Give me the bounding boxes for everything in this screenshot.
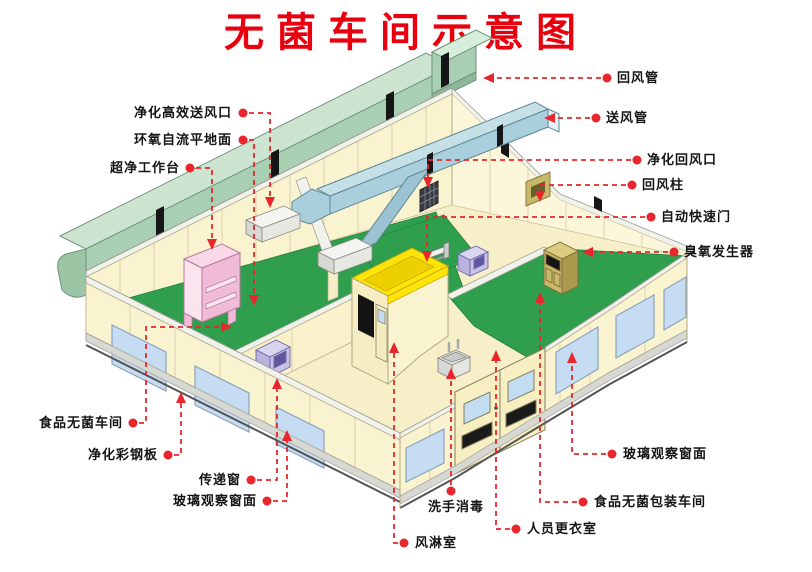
label-purify-steel-panel: 净化彩钢板 xyxy=(38,447,158,463)
label-glass-window-right: 玻璃观察窗面 xyxy=(623,446,707,462)
label-air-shower-room: 风淋室 xyxy=(415,535,457,551)
label-ozone-generator: 臭氧发生器 xyxy=(684,244,754,260)
cleanroom-illustration xyxy=(0,0,812,572)
label-supply-air-duct: 送风管 xyxy=(606,110,648,126)
label-staff-changing-room: 人员更衣室 xyxy=(527,521,597,537)
label-epoxy-floor: 环氧自流平地面 xyxy=(52,132,232,148)
label-glass-window-left: 玻璃观察窗面 xyxy=(107,493,257,509)
label-purify-return-vent: 净化回风口 xyxy=(647,152,717,168)
label-food-sterile-workshop: 食品无菌车间 xyxy=(3,415,123,431)
label-auto-rapid-door: 自动快速门 xyxy=(661,209,731,225)
label-transfer-window: 传递窗 xyxy=(141,472,241,488)
label-return-air-duct: 回风管 xyxy=(617,70,659,86)
label-hand-wash-disinfect: 洗手消毒 xyxy=(428,499,484,515)
clean-workbench-graphic xyxy=(184,244,240,330)
label-packaging-workshop: 食品无菌包装车间 xyxy=(594,494,706,510)
label-hepa-supply-outlet: 净化高效送风口 xyxy=(52,105,232,121)
label-clean-workbench: 超净工作台 xyxy=(30,160,180,176)
label-return-air-column: 回风柱 xyxy=(642,177,684,193)
ozone-generator-cabinet xyxy=(544,242,578,294)
air-shower-door xyxy=(376,304,387,362)
sterile-workshop-schematic: 无菌车间示意图 xyxy=(0,0,812,572)
